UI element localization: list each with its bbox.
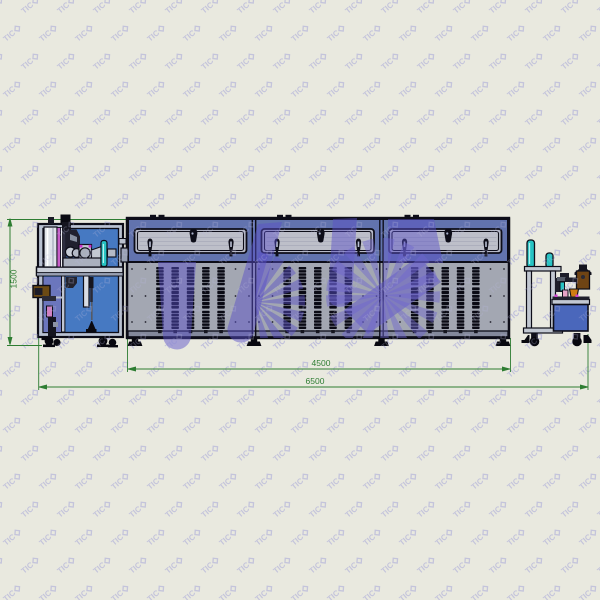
- svg-text:4500: 4500: [312, 358, 331, 368]
- svg-text:6500: 6500: [306, 376, 325, 386]
- svg-text:1500: 1500: [9, 269, 19, 288]
